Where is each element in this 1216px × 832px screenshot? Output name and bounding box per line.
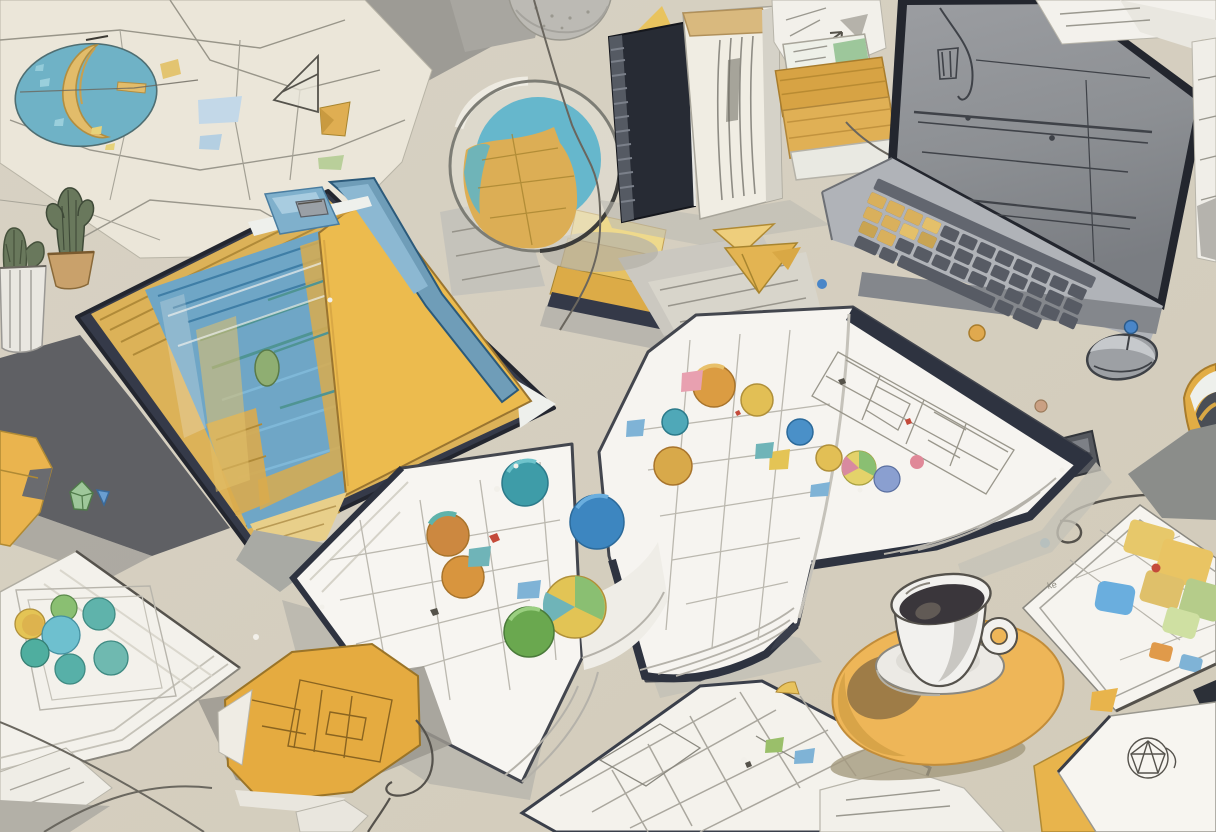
svg-text:ke: ke [1046,579,1057,591]
